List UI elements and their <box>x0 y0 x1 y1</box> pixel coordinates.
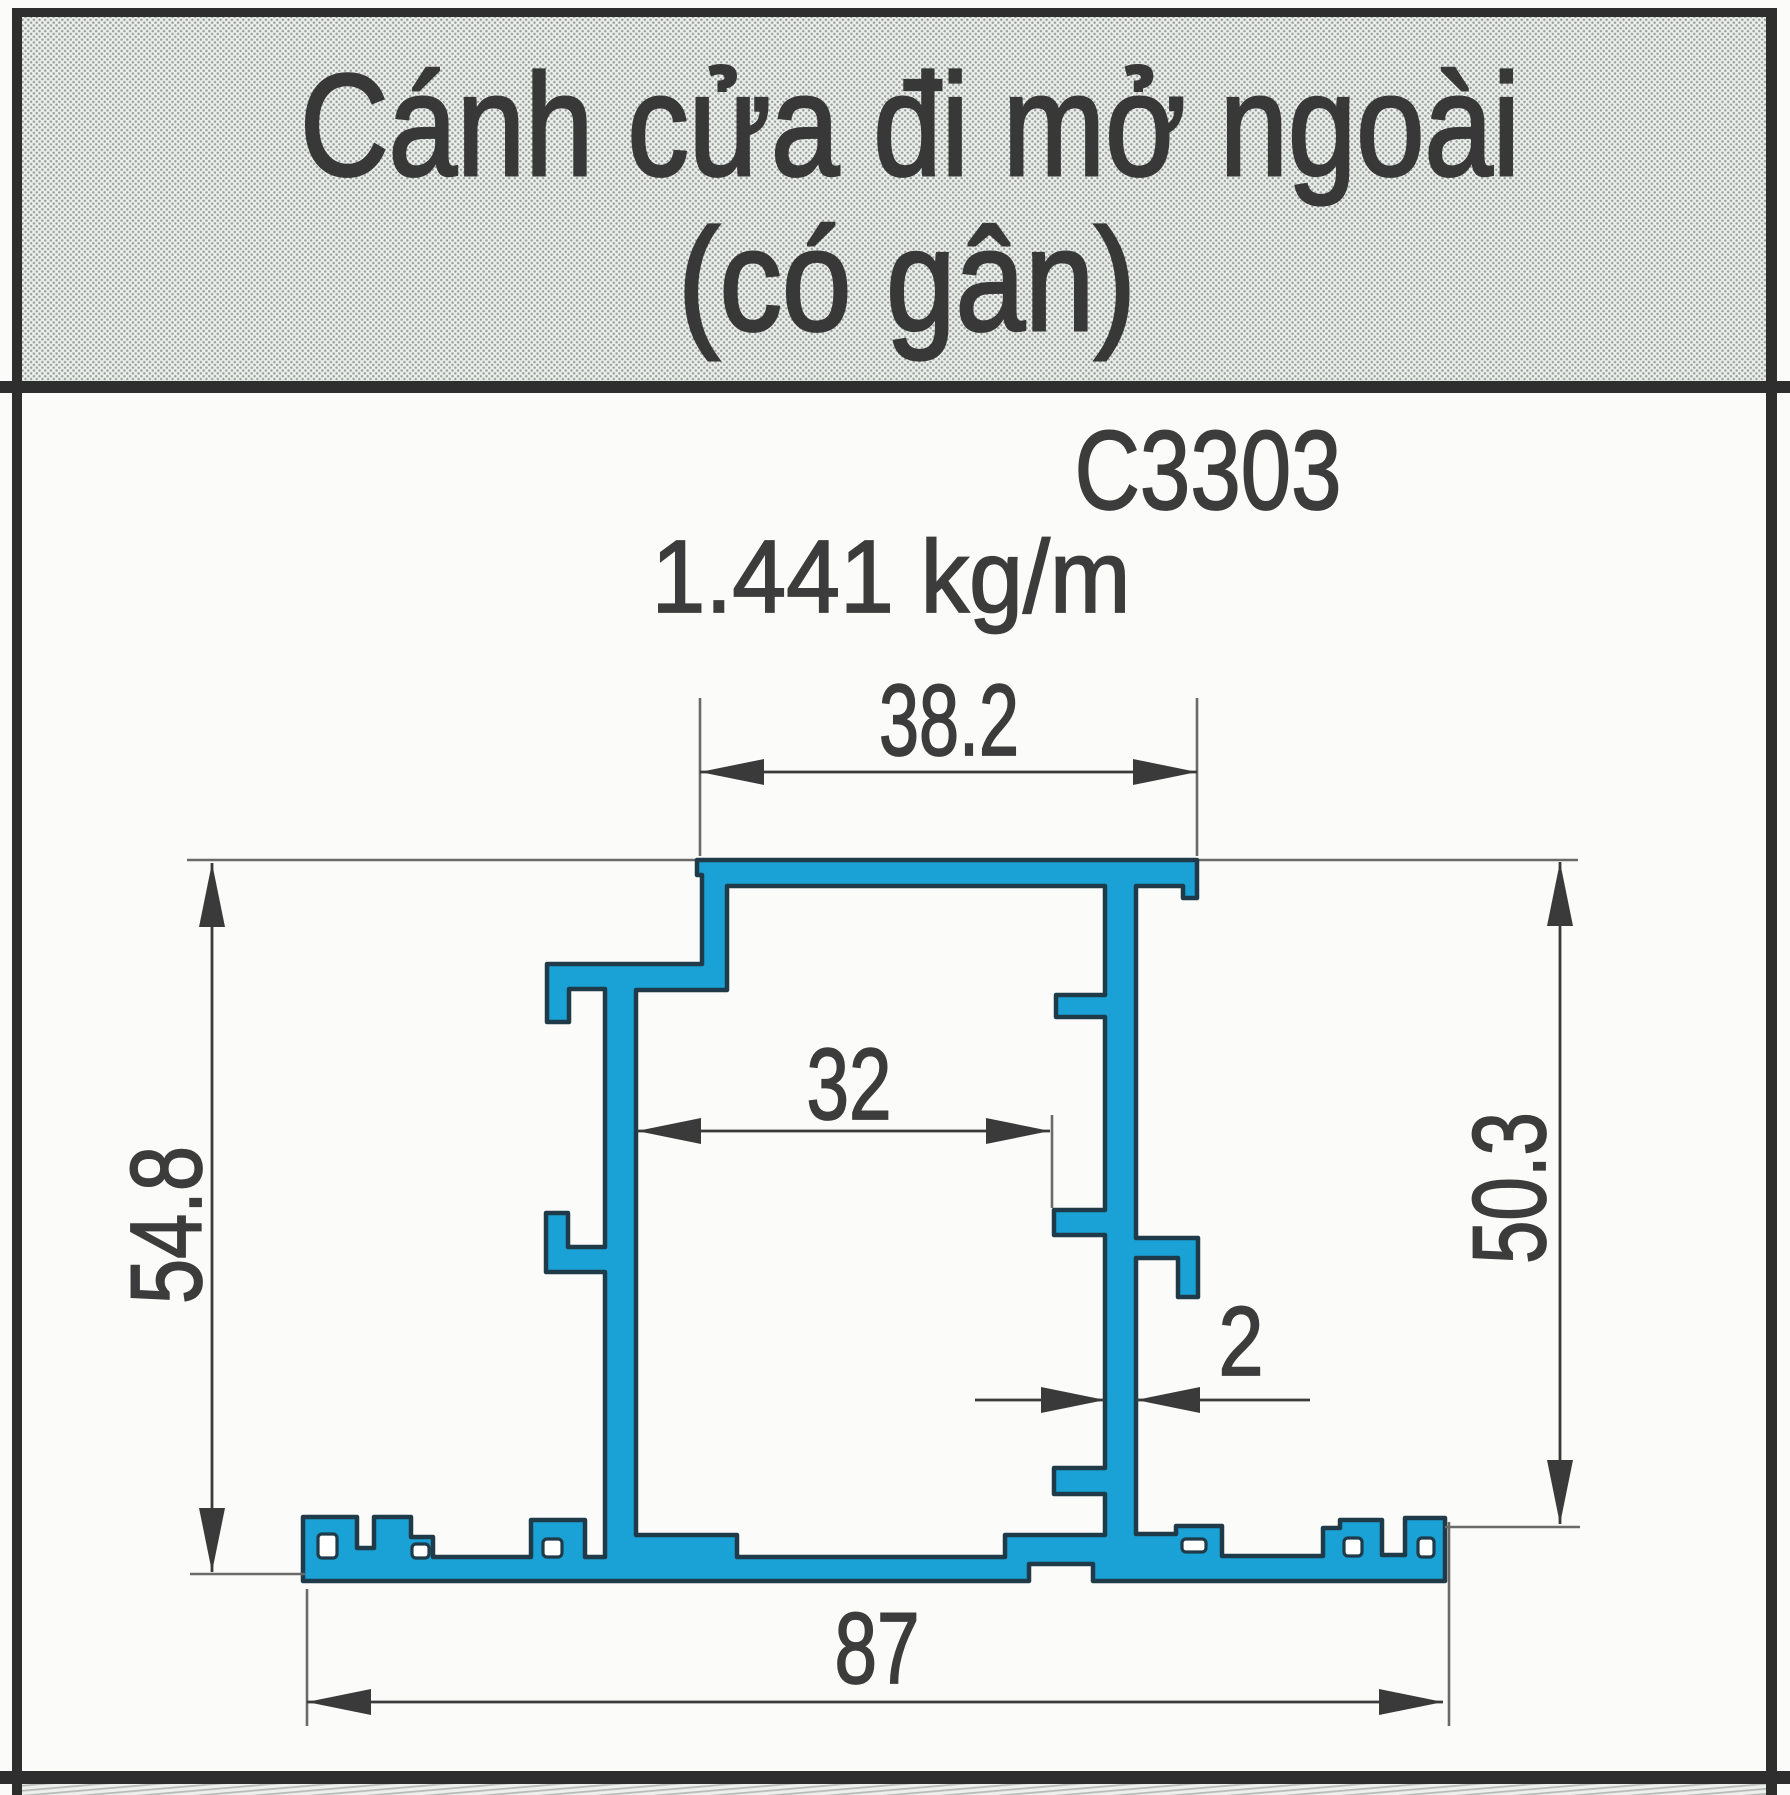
svg-text:32: 32 <box>807 1029 892 1141</box>
svg-text:(có gân): (có gân) <box>678 199 1136 361</box>
svg-text:87: 87 <box>835 1593 920 1705</box>
svg-text:2: 2 <box>1219 1286 1264 1396</box>
svg-text:Cánh cửa đi mở ngoài: Cánh cửa đi mở ngoài <box>300 44 1520 206</box>
svg-text:38.2: 38.2 <box>879 665 1019 777</box>
svg-text:C3303: C3303 <box>1075 408 1342 533</box>
svg-text:54.8: 54.8 <box>111 1146 223 1304</box>
svg-text:50.3: 50.3 <box>1452 1112 1568 1264</box>
svg-text:1.441 kg/m: 1.441 kg/m <box>652 519 1131 634</box>
